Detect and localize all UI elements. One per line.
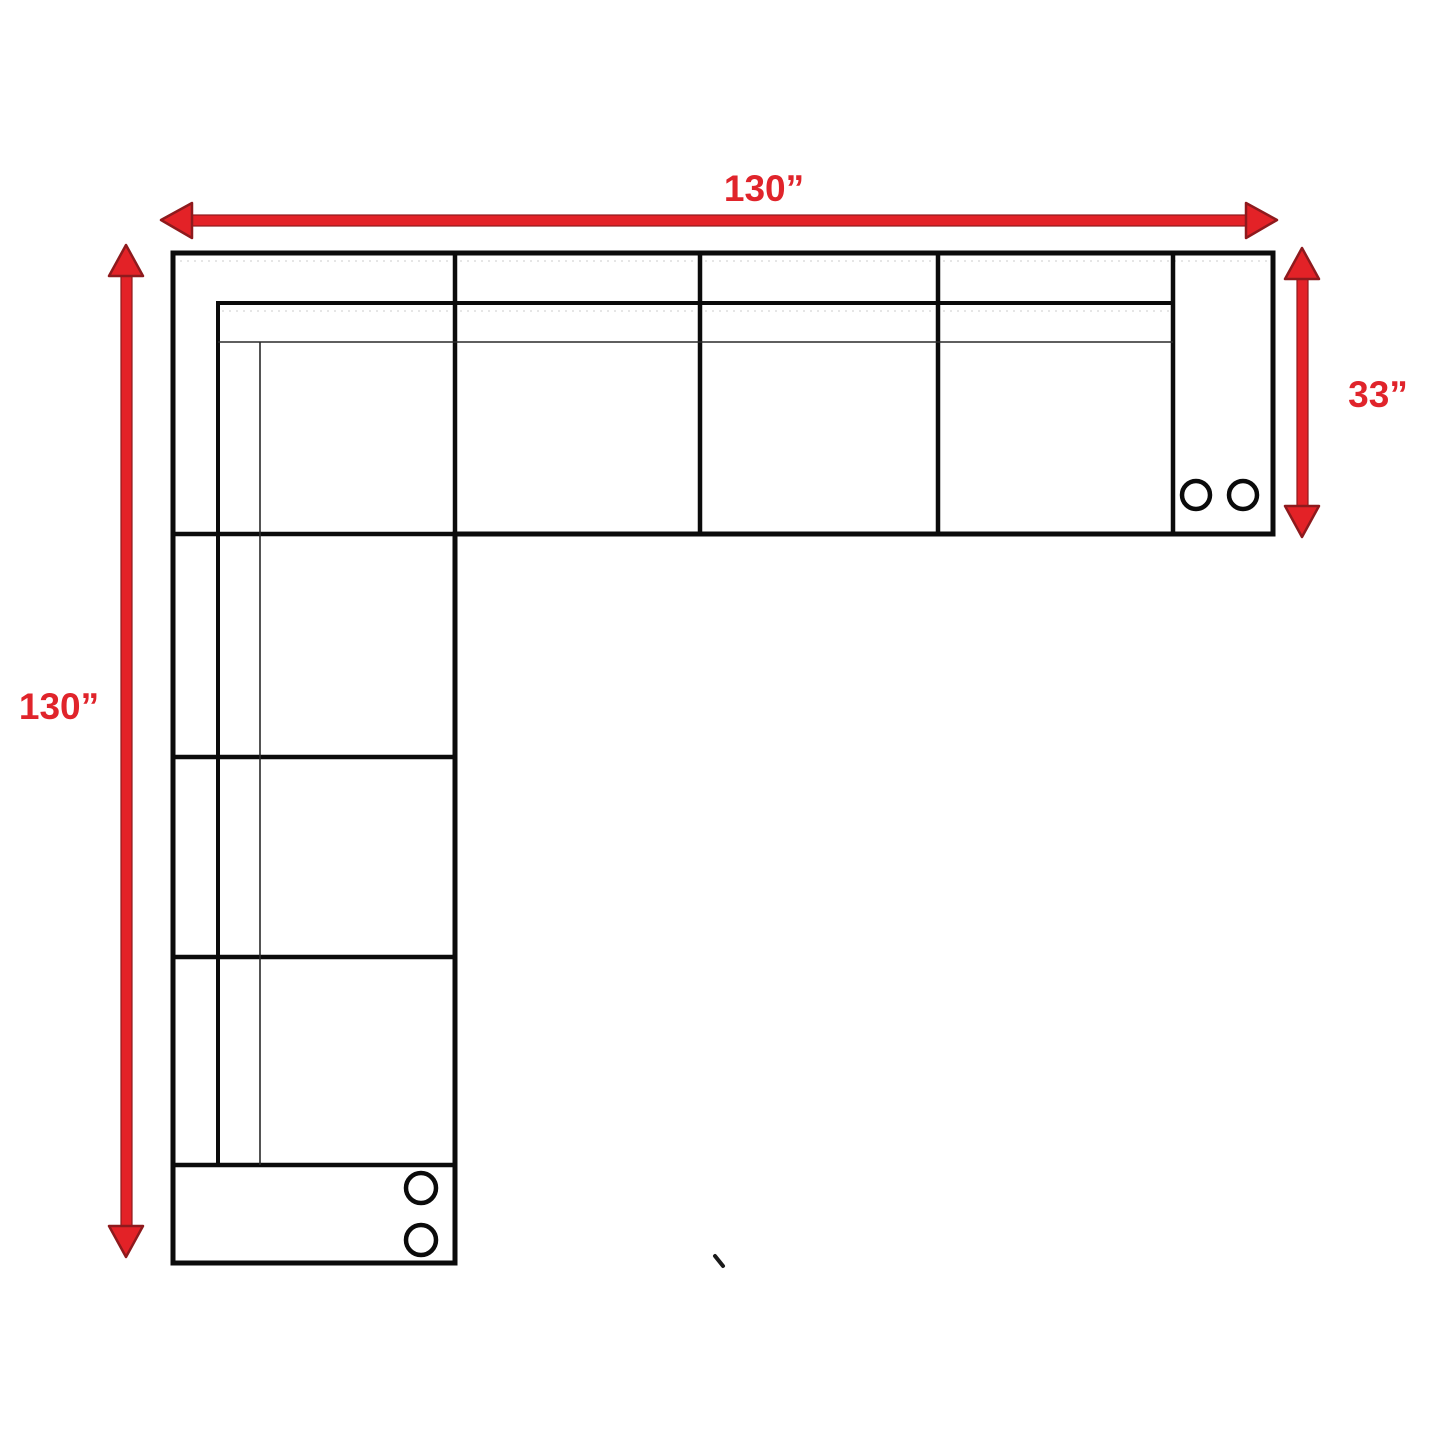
top-width-dimension-label: 130” <box>689 170 839 207</box>
bottom-arm-caster-icons <box>406 1173 436 1255</box>
top-row-seat-dividers <box>455 253 1173 534</box>
top-dimension-arrow <box>161 203 1277 238</box>
backrest-lines <box>218 303 1173 1165</box>
left-dimension-arrow <box>109 245 143 1257</box>
sofa-dimension-diagram: 130” 130” 33” <box>0 0 1445 1445</box>
sofa-plan-drawing <box>0 0 1445 1445</box>
right-dimension-arrow <box>1285 248 1319 537</box>
stray-tick-mark <box>715 1256 723 1266</box>
right-arm-caster-icons <box>1182 481 1257 509</box>
left-column-seat-dividers <box>173 534 455 1165</box>
left-height-dimension-label: 130” <box>16 688 102 725</box>
right-depth-dimension-label: 33” <box>1336 376 1420 413</box>
